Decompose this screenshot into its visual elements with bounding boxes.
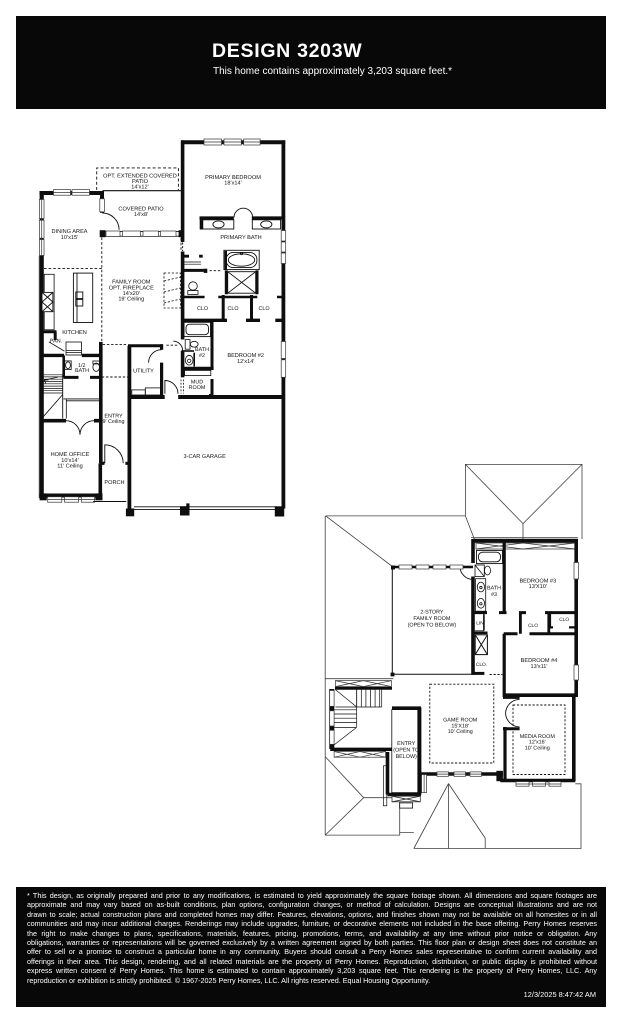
svg-text:14'x8': 14'x8' [134, 212, 148, 218]
svg-text:PRIMARY BATH: PRIMARY BATH [220, 235, 261, 241]
svg-text:13'x11': 13'x11' [531, 664, 548, 670]
svg-text:2-STORY: 2-STORY [420, 610, 444, 616]
svg-text:CLO: CLO [528, 623, 538, 629]
svg-text:18'x14': 18'x14' [224, 181, 241, 187]
svg-text:(OPEN TO BELOW): (OPEN TO BELOW) [408, 623, 457, 629]
svg-text:(OPEN TO: (OPEN TO [393, 748, 419, 754]
svg-text:BATH: BATH [75, 368, 89, 374]
svg-text:BELOW): BELOW) [396, 754, 417, 760]
svg-text:11' Ceiling: 11' Ceiling [57, 463, 83, 470]
svg-text:9' Ceiling: 9' Ceiling [102, 419, 124, 425]
svg-text:LIN: LIN [476, 621, 484, 627]
svg-text:#3: #3 [491, 592, 497, 598]
svg-text:ENTRY: ENTRY [397, 741, 416, 747]
svg-text:3-CAR GARAGE: 3-CAR GARAGE [184, 454, 227, 460]
svg-text:UTILITY: UTILITY [133, 369, 154, 375]
svg-text:10' Ceiling: 10' Ceiling [525, 745, 550, 751]
svg-text:10' Ceiling: 10' Ceiling [448, 729, 473, 735]
svg-text:10'x15': 10'x15' [61, 235, 78, 241]
svg-text:CLO.: CLO. [476, 662, 487, 668]
svg-text:FAMILY ROOM: FAMILY ROOM [413, 616, 450, 622]
svg-text:PORCH: PORCH [104, 480, 124, 486]
svg-text:#2: #2 [199, 353, 205, 359]
svg-text:CLO: CLO [258, 306, 269, 312]
svg-text:BATH: BATH [487, 586, 501, 592]
svg-text:13'X10': 13'X10' [529, 584, 547, 590]
svg-text:19' Ceiling: 19' Ceiling [118, 296, 144, 303]
svg-text:CLO: CLO [227, 306, 238, 312]
svg-text:CLO: CLO [559, 617, 569, 623]
svg-text:ROOM: ROOM [189, 385, 206, 391]
svg-text:CLO: CLO [197, 306, 208, 312]
svg-text:12'x14': 12'x14' [237, 359, 254, 365]
svg-text:KITCHEN: KITCHEN [62, 330, 87, 336]
svg-text:14'x12': 14'x12' [131, 185, 148, 191]
